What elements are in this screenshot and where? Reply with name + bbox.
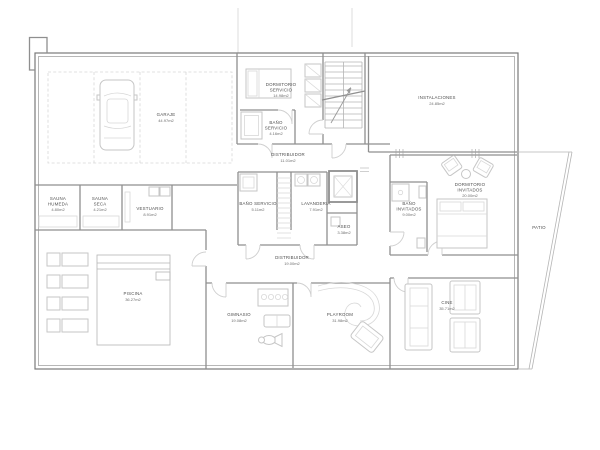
room-area-garaje: 44.97m2 <box>158 118 174 123</box>
gym-equipment-icon <box>258 289 290 347</box>
room-label-bano-servicio-ensuite-2: SERVICIO <box>265 126 288 131</box>
room-label-bano-servicio: BAÑO SERVICIO <box>239 201 277 206</box>
room-label-playroom: PLAYROOM <box>327 312 353 317</box>
sofa-icons <box>405 281 480 352</box>
room-area-distribuidor-norte: 11.01m2 <box>280 158 296 163</box>
washer-icons <box>295 174 320 186</box>
room-label-cine: CINE <box>441 300 452 305</box>
guest-bed-icon <box>437 199 487 248</box>
shelving-icon <box>277 178 291 238</box>
room-label-vestuario: VESTUARIO <box>136 206 164 211</box>
room-area-instalaciones: 24.85m2 <box>429 101 445 106</box>
patio-area <box>518 152 572 369</box>
room-area-sauna-seca: 4.21m2 <box>93 207 107 212</box>
room-area-gimnasio: 19.08m2 <box>231 318 247 323</box>
floor-plan-canvas: GARAJE 44.97m2 DORMITORIO SERVICIO 14.98… <box>0 0 600 450</box>
room-label-aseo: ASEO <box>337 224 350 229</box>
room-label-dormitorio-servicio-2: SERVICIO <box>270 88 293 93</box>
room-label-sauna-humeda: SAUNA <box>50 196 66 201</box>
room-label-bano-servicio-ensuite: BAÑO <box>269 120 283 125</box>
stairs-icon <box>322 62 365 128</box>
floor-plan: GARAJE 44.97m2 DORMITORIO SERVICIO 14.98… <box>0 0 600 450</box>
room-area-dormitorio-invitados: 20.00m2 <box>462 193 478 198</box>
ensuite-shower-icon <box>241 112 262 139</box>
room-label-lavanderia: LAVANDERIA <box>301 201 330 206</box>
room-area-bano-servicio-ensuite: 4.16m2 <box>269 131 283 136</box>
room-label-distribuidor-norte: DISTRIBUIDOR <box>271 152 305 157</box>
loungers <box>47 253 88 332</box>
room-area-sauna-humeda: 4.80m2 <box>51 207 65 212</box>
room-area-lavanderia: 7.91m2 <box>309 207 323 212</box>
room-area-piscina: 36.27m2 <box>125 297 141 302</box>
armchairs-icon <box>441 155 494 179</box>
room-area-distribuidor: 19.00m2 <box>284 261 300 266</box>
room-area-vestuario: 8.91m2 <box>143 212 157 217</box>
room-label-sauna-seca: SAUNA <box>92 196 108 201</box>
room-label-bano-invitados: BAÑO <box>402 201 416 206</box>
room-area-aseo: 3.38m2 <box>337 230 351 235</box>
section-lines <box>238 8 352 53</box>
room-area-playroom: 31.98m2 <box>332 318 348 323</box>
room-label-dormitorio-invitados: DORMITORIO <box>455 182 486 187</box>
room-area-dormitorio-servicio: 14.98m2 <box>273 93 289 98</box>
room-label-garaje: GARAJE <box>157 112 176 117</box>
room-label-patio: PATIO <box>532 225 546 230</box>
room-area-cine: 35.71m2 <box>439 306 455 311</box>
room-label-distribuidor: DISTRIBUIDOR <box>275 255 309 260</box>
slide-icon <box>318 282 384 353</box>
elevator-icon <box>329 171 357 202</box>
room-area-bano-invitados: 9.00m2 <box>402 212 416 217</box>
room-label-instalaciones: INSTALACIONES <box>418 95 455 100</box>
room-label-dormitorio-servicio: DORMITORIO <box>266 82 297 87</box>
room-area-bano-servicio: 5.11m2 <box>251 207 265 212</box>
parking-bays <box>48 72 232 163</box>
room-label-gimnasio: GIMNASIO <box>227 312 251 317</box>
room-label-dormitorio-invitados-2: INVITADOS <box>457 188 482 193</box>
service-shower-icon <box>240 174 257 191</box>
room-label-sauna-seca-2: SECA <box>94 202 107 207</box>
sauna-benches <box>39 216 119 227</box>
car-icon <box>97 80 137 150</box>
service-closet-icon <box>305 64 321 107</box>
room-label-bano-invitados-2: INVITADOS <box>396 207 421 212</box>
room-label-sauna-humeda-2: HUMEDA <box>48 202 68 207</box>
room-label-piscina: PISCINA <box>124 291 143 296</box>
